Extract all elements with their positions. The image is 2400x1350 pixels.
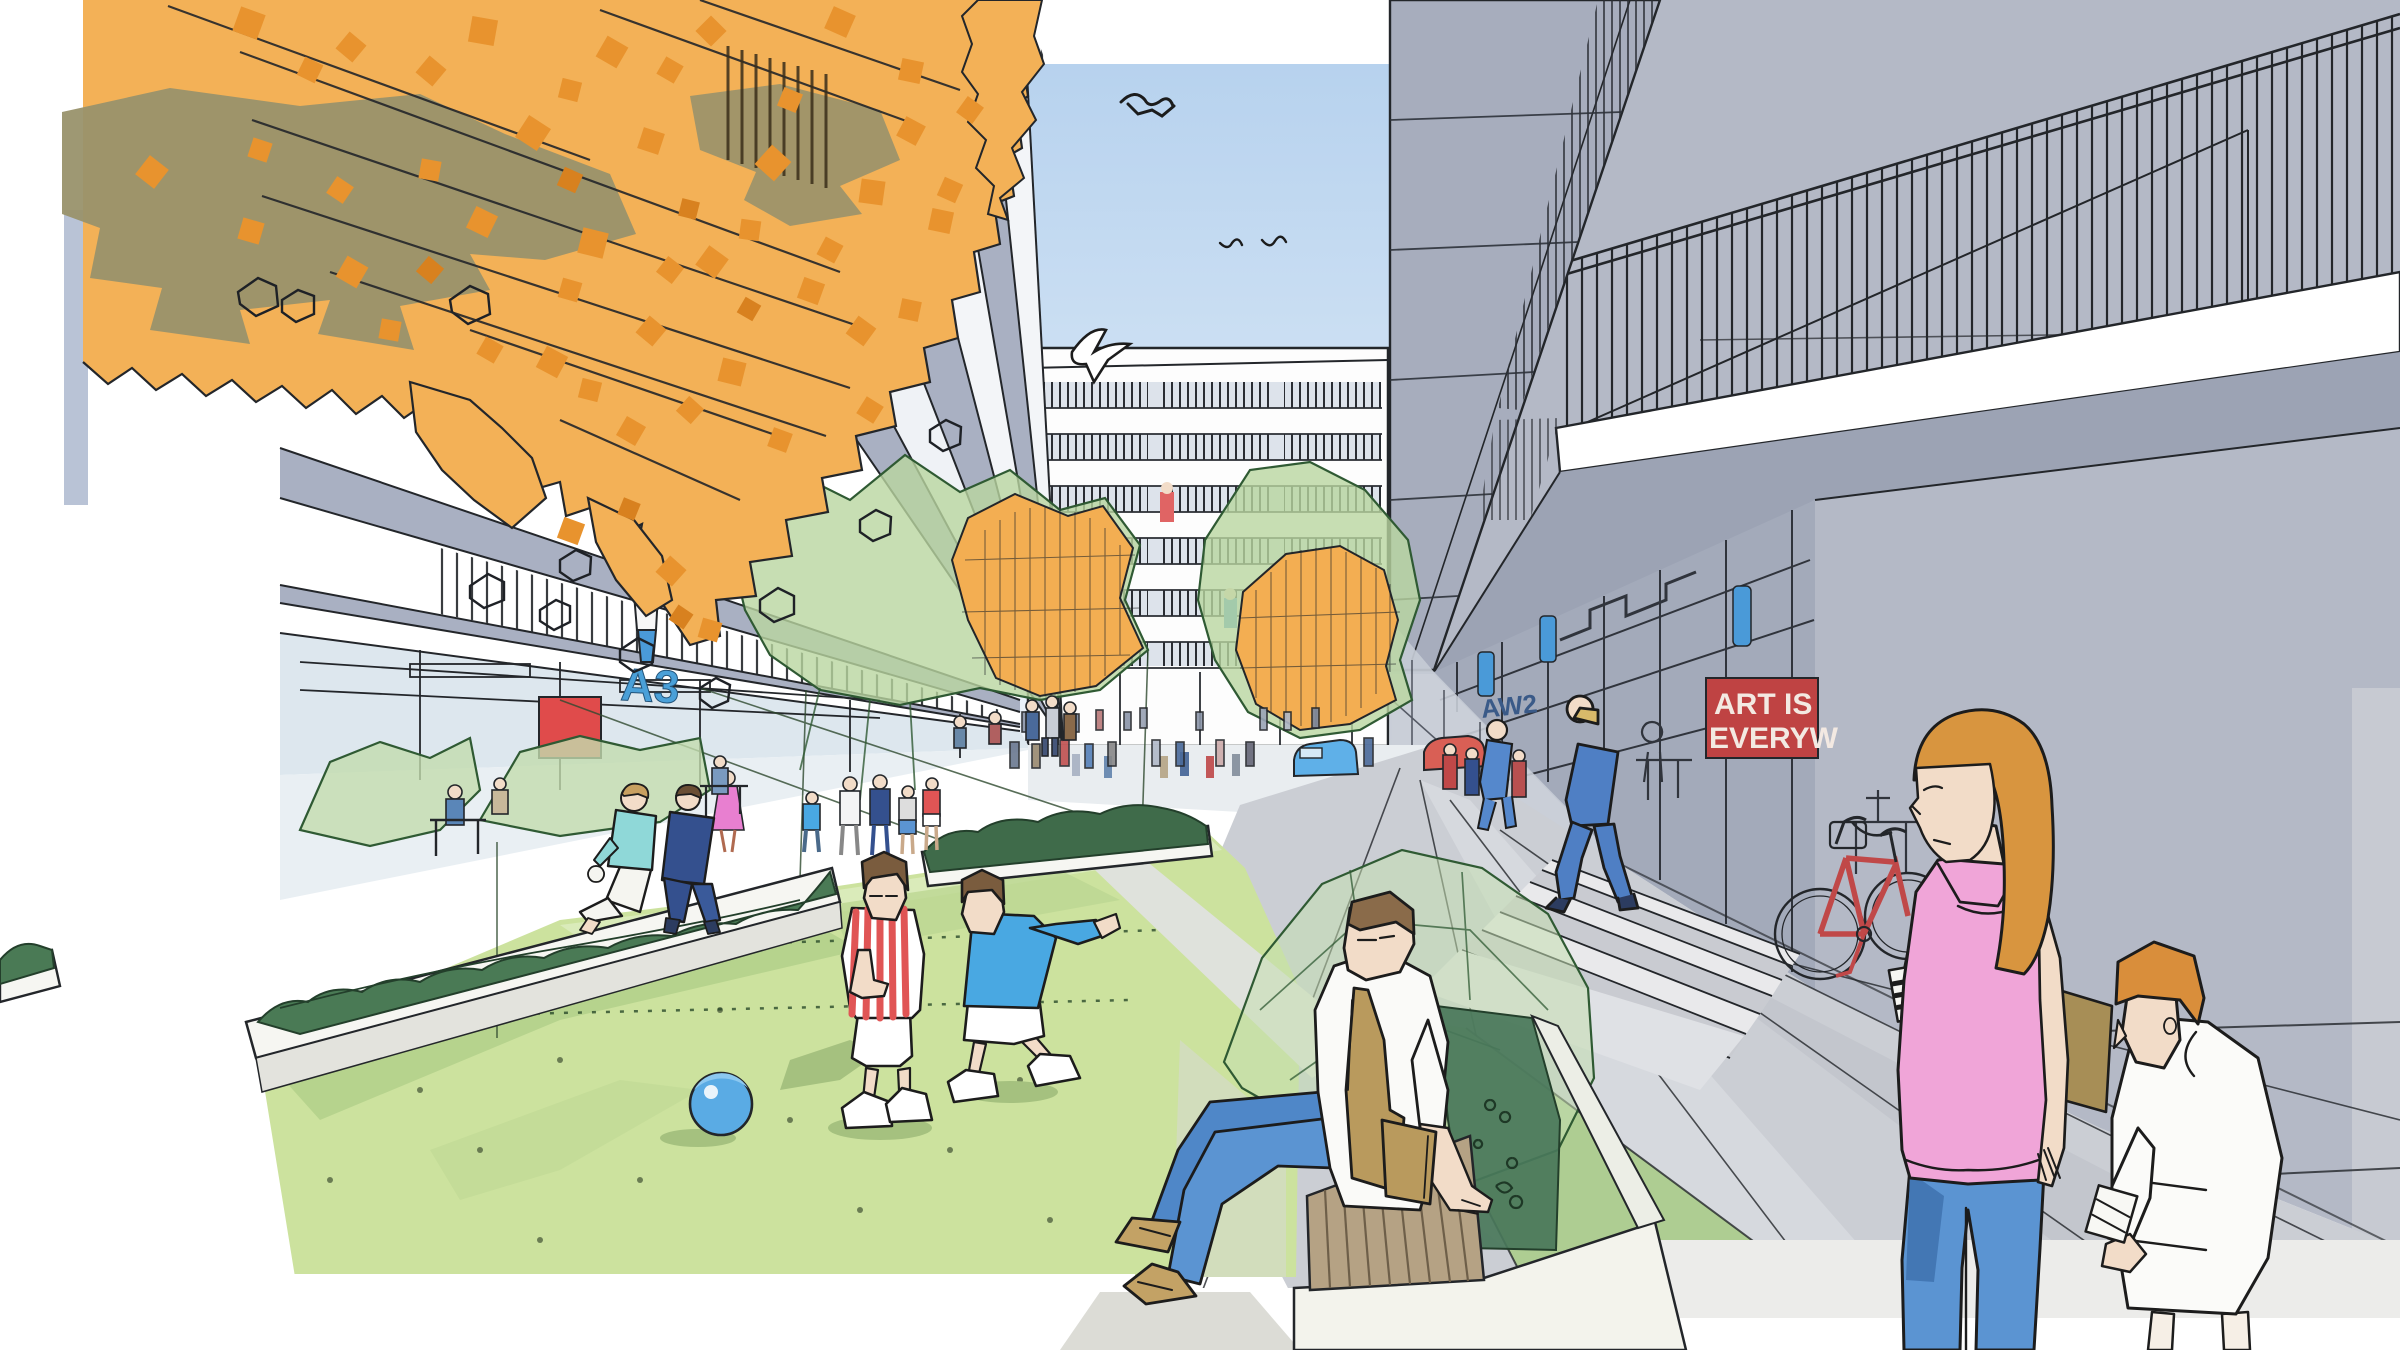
svg-text:AW2: AW2 (1479, 688, 1538, 724)
svg-text:A3: A3 (619, 658, 680, 713)
svg-text:EVERYW: EVERYW (1709, 722, 1839, 755)
svg-text:ART IS: ART IS (1714, 688, 1812, 721)
